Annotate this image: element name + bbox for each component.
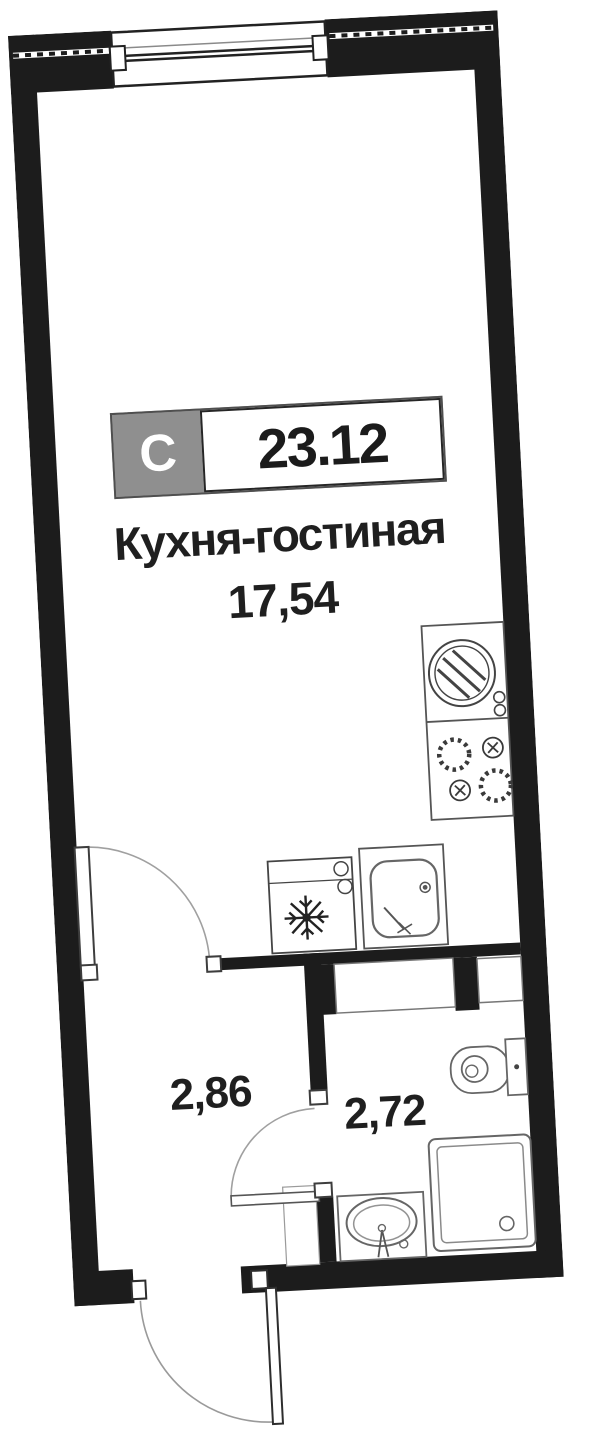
apartment-plan: С 23.12 Кухня-гостиная 17,54 2,86 2,72 bbox=[8, 10, 571, 1440]
kitchen-door-jamb bbox=[206, 956, 221, 972]
kitchen-door bbox=[75, 840, 222, 980]
room-area-hallway: 2,86 bbox=[129, 1065, 291, 1123]
unit-total-area: 23.12 bbox=[256, 409, 389, 481]
room-area-kitchen-living: 17,54 bbox=[226, 570, 339, 630]
shower-icon bbox=[428, 1134, 536, 1251]
kitchen-sink-icon bbox=[359, 844, 448, 948]
bathroom-sink-icon bbox=[337, 1192, 426, 1261]
window bbox=[109, 21, 330, 86]
bathroom-door-hinge-jamb bbox=[314, 1183, 332, 1198]
bottom-left-corner-block bbox=[73, 1269, 135, 1306]
window-end-cap-left bbox=[110, 46, 126, 71]
kitchen-counter bbox=[421, 622, 513, 820]
entrance-door-leaf bbox=[266, 1288, 283, 1424]
room-area-bathroom: 2,72 bbox=[304, 1084, 466, 1142]
kitchen-door-hinge-jamb bbox=[81, 965, 98, 981]
niche-bar-right bbox=[453, 957, 480, 1011]
niche-middle bbox=[334, 958, 455, 1013]
sink-faucet-icon bbox=[493, 691, 505, 703]
entrance-jamb-right bbox=[251, 1270, 268, 1289]
entrance-door-arc bbox=[140, 1294, 275, 1429]
entrance-jamb-left bbox=[131, 1281, 146, 1300]
unit-total-area-cell: 23.12 bbox=[200, 398, 445, 493]
plan-drawing bbox=[8, 10, 571, 1440]
left-wall bbox=[8, 35, 101, 1307]
unit-type-label: С bbox=[138, 423, 179, 485]
unit-type-cell: С bbox=[112, 410, 204, 496]
entrance-door bbox=[131, 1270, 283, 1431]
niche-right bbox=[477, 956, 523, 1002]
kitchen-living-label-block: Кухня-гостиная 17,54 bbox=[58, 497, 504, 638]
window-end-cap-right bbox=[312, 35, 328, 60]
unit-badge: С 23.12 bbox=[110, 396, 447, 499]
fridge-icon bbox=[268, 857, 357, 953]
kitchen-door-arc bbox=[82, 841, 210, 969]
floorplan-canvas: С 23.12 Кухня-гостиная 17,54 2,86 2,72 bbox=[0, 0, 600, 1440]
